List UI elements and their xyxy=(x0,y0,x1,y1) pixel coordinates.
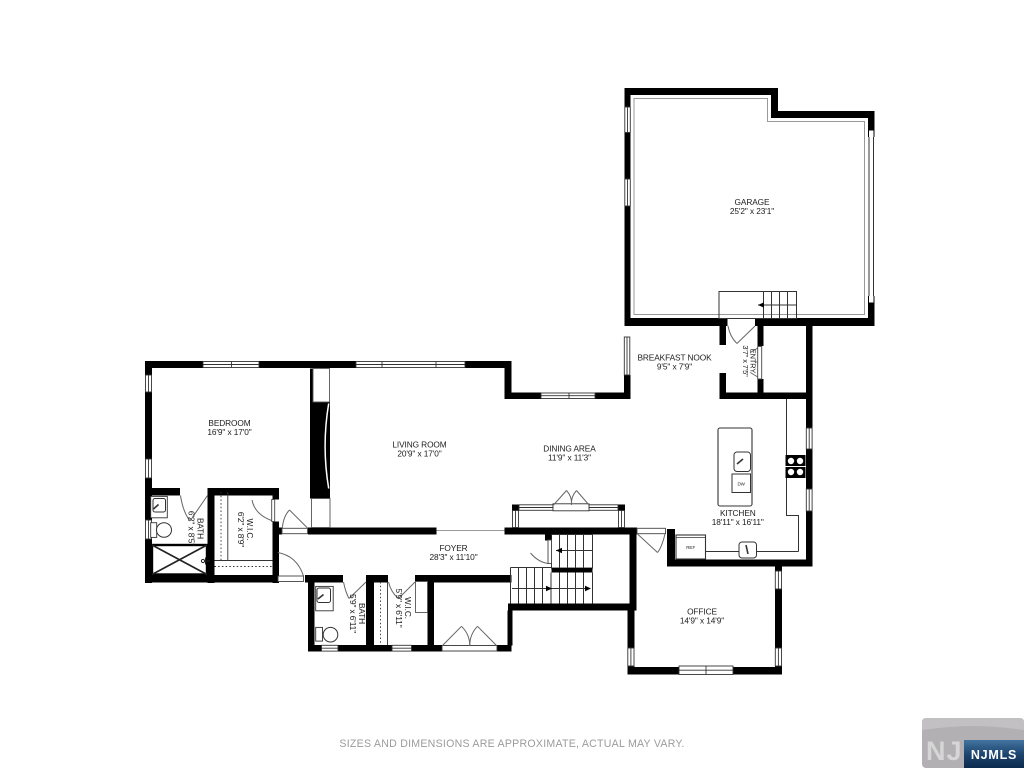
svg-text:DW: DW xyxy=(737,482,745,487)
svg-text:20'9" x 17'0": 20'9" x 17'0" xyxy=(397,448,441,458)
svg-text:SIZES AND DIMENSIONS ARE APPRO: SIZES AND DIMENSIONS ARE APPROXIMATE, AC… xyxy=(339,738,684,750)
svg-text:16'9" x 17'0": 16'9" x 17'0" xyxy=(207,427,251,437)
svg-text:14'9" x 14'9": 14'9" x 14'9" xyxy=(680,615,724,625)
svg-text:25'2" x 23'1": 25'2" x 23'1" xyxy=(730,206,774,216)
svg-text:9'5" x 7'9": 9'5" x 7'9" xyxy=(657,361,692,371)
svg-text:18'11" x 16'11": 18'11" x 16'11" xyxy=(712,517,764,527)
svg-text:28'3" x 11'10": 28'3" x 11'10" xyxy=(429,552,477,562)
svg-text:REF: REF xyxy=(686,545,695,550)
svg-text:11'9" x 11'3": 11'9" x 11'3" xyxy=(548,452,591,462)
svg-text:ENTRY3'7" x 7'5": ENTRY3'7" x 7'5" xyxy=(741,345,757,377)
svg-text:NJMLS: NJMLS xyxy=(971,748,1017,762)
